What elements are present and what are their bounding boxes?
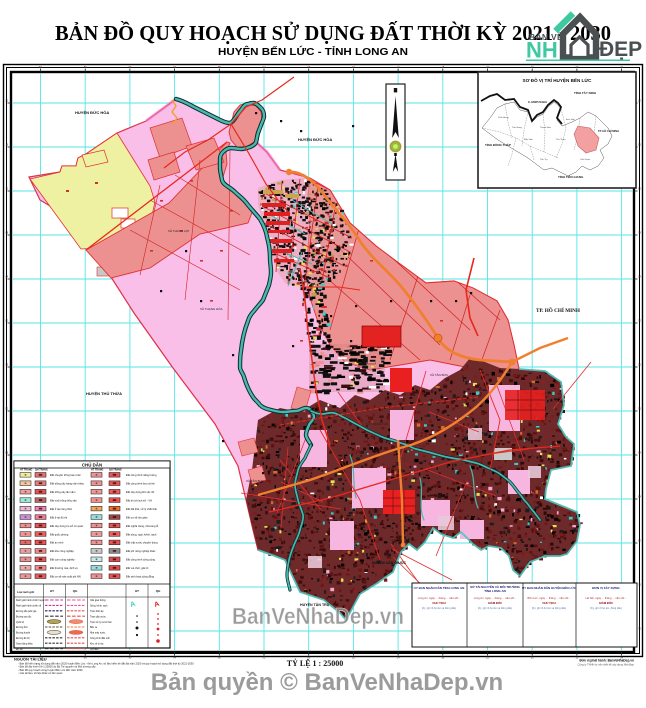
svg-text:HT: HT [135,589,139,593]
svg-text:Vĩnh Hưng: Vĩnh Hưng [498,116,509,119]
svg-text:XÃ THANH PHÚ: XÃ THANH PHÚ [366,421,388,426]
svg-text:Bến Lức, ngày ... tháng ... nă: Bến Lức, ngày ... tháng ... năm 20... [528,596,571,600]
svg-text:Cần Giuộc: Cần Giuộc [580,158,591,161]
svg-text:TỈNH LONG AN: TỈNH LONG AN [484,588,506,593]
svg-text:C.AMPUCHIA: C.AMPUCHIA [528,100,548,104]
svg-text:ĐẸP: ĐẸP [599,38,642,61]
svg-text:Nhà máy nước: Nhà máy nước [90,633,106,635]
svg-text:Đơn vị phát hành: BanVeNhaDep.: Đơn vị phát hành: BanVeNhaDep.vn [579,659,634,663]
svg-text:XÃ THẠNH HÒA: XÃ THẠNH HÒA [200,306,222,311]
svg-text:TỈNH TÂY NINH: TỈNH TÂY NINH [574,90,596,95]
svg-text:Đất phi nông nghiệp khác: Đất phi nông nghiệp khác [126,549,156,553]
svg-text:QH TRẠNG: QH TRẠNG [35,469,48,472]
svg-text:Bến xe: Bến xe [90,626,98,629]
svg-text:- Các tài liệu, số liệu khác c: - Các tài liệu, số liệu khác có liên qua… [18,671,63,675]
svg-text:Đất công trình bưu chính: Đất công trình bưu chính [126,482,155,486]
svg-text:Tân Trụ: Tân Trụ [540,158,548,161]
svg-text:QH: QH [73,589,78,593]
svg-text:HUYỆN ĐỨC HÒA: HUYỆN ĐỨC HÒA [298,137,332,142]
svg-text:CHÚ DẪN: CHÚ DẪN [82,462,102,467]
svg-text:Đất chuyên trồng lúa nước: Đất chuyên trồng lúa nước [50,473,82,477]
svg-text:XÃ THẠNH LỢI: XÃ THẠNH LỢI [168,228,189,233]
svg-text:Mộc Hóa: Mộc Hóa [524,139,534,141]
svg-text:Đất bãi thải, xử lý chất thải: Đất bãi thải, xử lý chất thải [126,507,157,511]
svg-text:Đất cơ sở tôn giáo: Đất cơ sở tôn giáo [126,515,148,519]
svg-text:Đất ở tại đô thị: Đất ở tại đô thị [50,515,67,519]
svg-text:HUYỆN CẦN GIUỘC: HUYỆN CẦN GIUỘC [372,560,407,565]
svg-text:HUYỆN THỦ THỪA: HUYỆN THỦ THỪA [86,391,122,396]
svg-text:Đất nuôi trồng thủy sản: Đất nuôi trồng thủy sản [50,498,77,502]
svg-text:Đất cơ sở sản xuất phi NN: Đất cơ sở sản xuất phi NN [50,575,81,579]
svg-text:ỦY BAN NHÂN DÂN HUYỆN BẾN LỨC: ỦY BAN NHÂN DÂN HUYỆN BẾN LỨC [522,585,577,590]
svg-text:Đất khu công nghiệp: Đất khu công nghiệp [50,549,74,553]
svg-text:Công trình đầu mối: Công trình đầu mối [90,637,110,640]
svg-text:TỈNH ĐỒNG THÁP: TỈNH ĐỒNG THÁP [485,142,511,147]
svg-text:Đất sông, ngòi, kênh, rạch: Đất sông, ngòi, kênh, rạch [126,532,157,536]
svg-text:Hà Nội, ngày ... tháng ... năm: Hà Nội, ngày ... tháng ... năm 20... [586,596,627,600]
svg-text:CHỦ TỊCH: CHỦ TỊCH [542,600,555,605]
svg-text:Đức Huệ: Đức Huệ [566,119,576,121]
svg-text:Đường tỉnh: Đường tỉnh [16,626,28,629]
svg-text:(Ký, ghi rõ họ tên và đóng dấu: (Ký, ghi rõ họ tên và đóng dấu) [478,607,512,610]
svg-text:Đất trồng cây lâu năm: Đất trồng cây lâu năm [50,490,75,494]
svg-text:Long An, ngày ... tháng ... nă: Long An, ngày ... tháng ... năm 20... [474,596,517,600]
svg-text:(Ký, ghi rõ họ tên và đóng dấu: (Ký, ghi rõ họ tên và đóng dấu) [422,607,456,610]
svg-text:HUYỆN BẾN LỨC - TỈNH LONG AN: HUYỆN BẾN LỨC - TỈNH LONG AN [218,45,408,58]
svg-text:Đất thương mại, dịch vụ: Đất thương mại, dịch vụ [50,566,78,570]
svg-text:TỶ LỆ 1 : 25000: TỶ LỆ 1 : 25000 [287,658,343,668]
svg-text:Đê, kè: Đê, kè [16,649,23,651]
svg-text:Loại ranh giới: Loại ranh giới [17,590,35,594]
svg-text:QH: QH [156,589,161,593]
svg-text:Đường huyện: Đường huyện [16,633,31,635]
svg-text:Khu xử lý rác: Khu xử lý rác [90,642,104,645]
svg-text:HUYỆN ĐỨC HÒA: HUYỆN ĐỨC HÒA [75,110,109,115]
svg-text:NGUỒN TÀI LIỆU: NGUỒN TÀI LIỆU [14,657,47,662]
svg-text:Long An, ngày ... tháng ... nă: Long An, ngày ... tháng ... năm 20... [418,596,461,600]
svg-text:TP. HỒ CHÍ MINH: TP. HỒ CHÍ MINH [536,306,580,314]
svg-text:NH: NH [526,38,558,63]
svg-text:Đất cụm công nghiệp: Đất cụm công nghiệp [50,558,75,562]
svg-text:ĐƠN VỊ XÂY DỰNG: ĐƠN VỊ XÂY DỰNG [592,585,620,590]
svg-text:CHỦ TỊCH: CHỦ TỊCH [432,600,445,605]
svg-text:Đất trồng cây hàng năm khác: Đất trồng cây hàng năm khác [50,482,85,486]
svg-text:Thạnh Hóa: Thạnh Hóa [540,127,552,129]
svg-text:Trạm xử lý nước thải: Trạm xử lý nước thải [90,621,112,624]
svg-text:HT TRẠNG: HT TRẠNG [20,469,32,472]
svg-text:TỈNH TIỀN GIANG: TỈNH TIỀN GIANG [558,174,584,179]
svg-text:Đất công trình năng lượng: Đất công trình năng lượng [126,473,157,477]
svg-text:SƠ ĐỒ VỊ TRÍ HUYỆN BẾN LỨC: SƠ ĐỒ VỊ TRÍ HUYỆN BẾN LỨC [523,76,593,83]
svg-text:Quốc lộ: Quốc lộ [16,621,25,624]
svg-text:Đường cao tốc: Đường cao tốc [16,615,32,618]
svg-text:Ranh giới hành chính xã: Ranh giới hành chính xã [16,605,42,608]
svg-text:Đất quốc phòng: Đất quốc phòng [50,532,69,536]
svg-text:Cột điện: Cột điện [90,648,99,651]
svg-text:Đất công trình công cộng: Đất công trình công cộng [126,558,156,562]
svg-text:BanVeNhaDep.vn: BanVeNhaDep.vn [232,603,404,629]
svg-text:Sông, kênh, rạch: Sông, kênh, rạch [90,605,108,608]
svg-text:Đất di tích lịch sử - VH: Đất di tích lịch sử - VH [126,498,152,502]
svg-text:GIÁM ĐỐC: GIÁM ĐỐC [599,600,613,605]
svg-text:Tân Hưng: Tân Hưng [512,127,523,129]
svg-text:XÃ TÂN BỬU: XÃ TÂN BỬU [430,372,448,377]
svg-text:Công ty TNHH tư vấn thiết kế x: Công ty TNHH tư vấn thiết kế xây dựng Nh… [578,663,635,667]
svg-text:Đường sắt quốc gia: Đường sắt quốc gia [16,610,37,613]
svg-text:ỦY BAN NHÂN DÂN TỈNH LONG AN: ỦY BAN NHÂN DÂN TỈNH LONG AN [414,585,465,590]
svg-text:Đường đô thị: Đường đô thị [16,637,30,640]
svg-text:Đất mặt nước chuyên dùng: Đất mặt nước chuyên dùng [126,541,158,545]
svg-text:QH TRẠNG: QH TRẠNG [109,469,122,472]
svg-text:XÃ TÂN BỬU: XÃ TÂN BỬU [246,478,264,483]
svg-text:Bản quyền © BanVeNhaDep.vn: Bản quyền © BanVeNhaDep.vn [151,669,503,696]
svg-text:Đất vui chơi, giải trí: Đất vui chơi, giải trí [126,566,149,570]
svg-text:Trạm cấp nước: Trạm cấp nước [90,615,107,618]
svg-text:Cầu giao thông: Cầu giao thông [90,599,106,602]
svg-text:Đất sinh hoạt cộng đồng: Đất sinh hoạt cộng đồng [126,575,155,579]
svg-text:HT TRẠNG: HT TRẠNG [91,469,103,472]
svg-text:Ranh giới hành chính huyện: Ranh giới hành chính huyện [16,600,46,602]
svg-text:(Ký, ghi rõ họ tên, đóng dấu): (Ký, ghi rõ họ tên, đóng dấu) [590,607,622,610]
svg-text:GIÁM ĐỐC: GIÁM ĐỐC [488,600,502,605]
svg-text:Đất xây dựng kho dự trữ: Đất xây dựng kho dự trữ [126,490,155,494]
svg-text:(Ký, ghi rõ họ tên và đóng dấu: (Ký, ghi rõ họ tên và đóng dấu) [532,607,566,610]
svg-text:Đất an ninh: Đất an ninh [50,541,64,545]
svg-text:Đất xây dựng trụ sở cơ quan: Đất xây dựng trụ sở cơ quan [50,524,84,528]
svg-text:Trạm biến áp: Trạm biến áp [90,610,104,613]
svg-text:Thủ Thừa: Thủ Thừa [556,138,566,141]
svg-text:Giao thông khác: Giao thông khác [16,642,34,645]
svg-text:Đất ở tại nông thôn: Đất ở tại nông thôn [50,507,73,511]
svg-text:HT: HT [50,589,54,593]
